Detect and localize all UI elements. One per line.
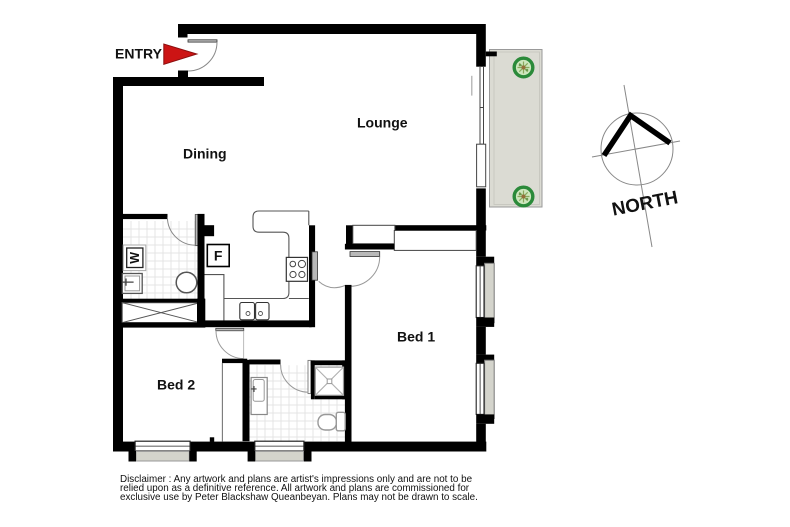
- svg-text:exclusive use by Peter Blacksh: exclusive use by Peter Blackshaw Queanbe…: [120, 492, 478, 503]
- svg-text:F: F: [214, 248, 223, 264]
- svg-text:W: W: [128, 252, 142, 264]
- svg-text:Lounge: Lounge: [357, 115, 408, 131]
- svg-text:Bed 2: Bed 2: [157, 377, 195, 393]
- svg-text:ENTRY: ENTRY: [115, 46, 163, 62]
- svg-text:Dining: Dining: [183, 146, 227, 162]
- svg-text:Bed 1: Bed 1: [397, 328, 435, 344]
